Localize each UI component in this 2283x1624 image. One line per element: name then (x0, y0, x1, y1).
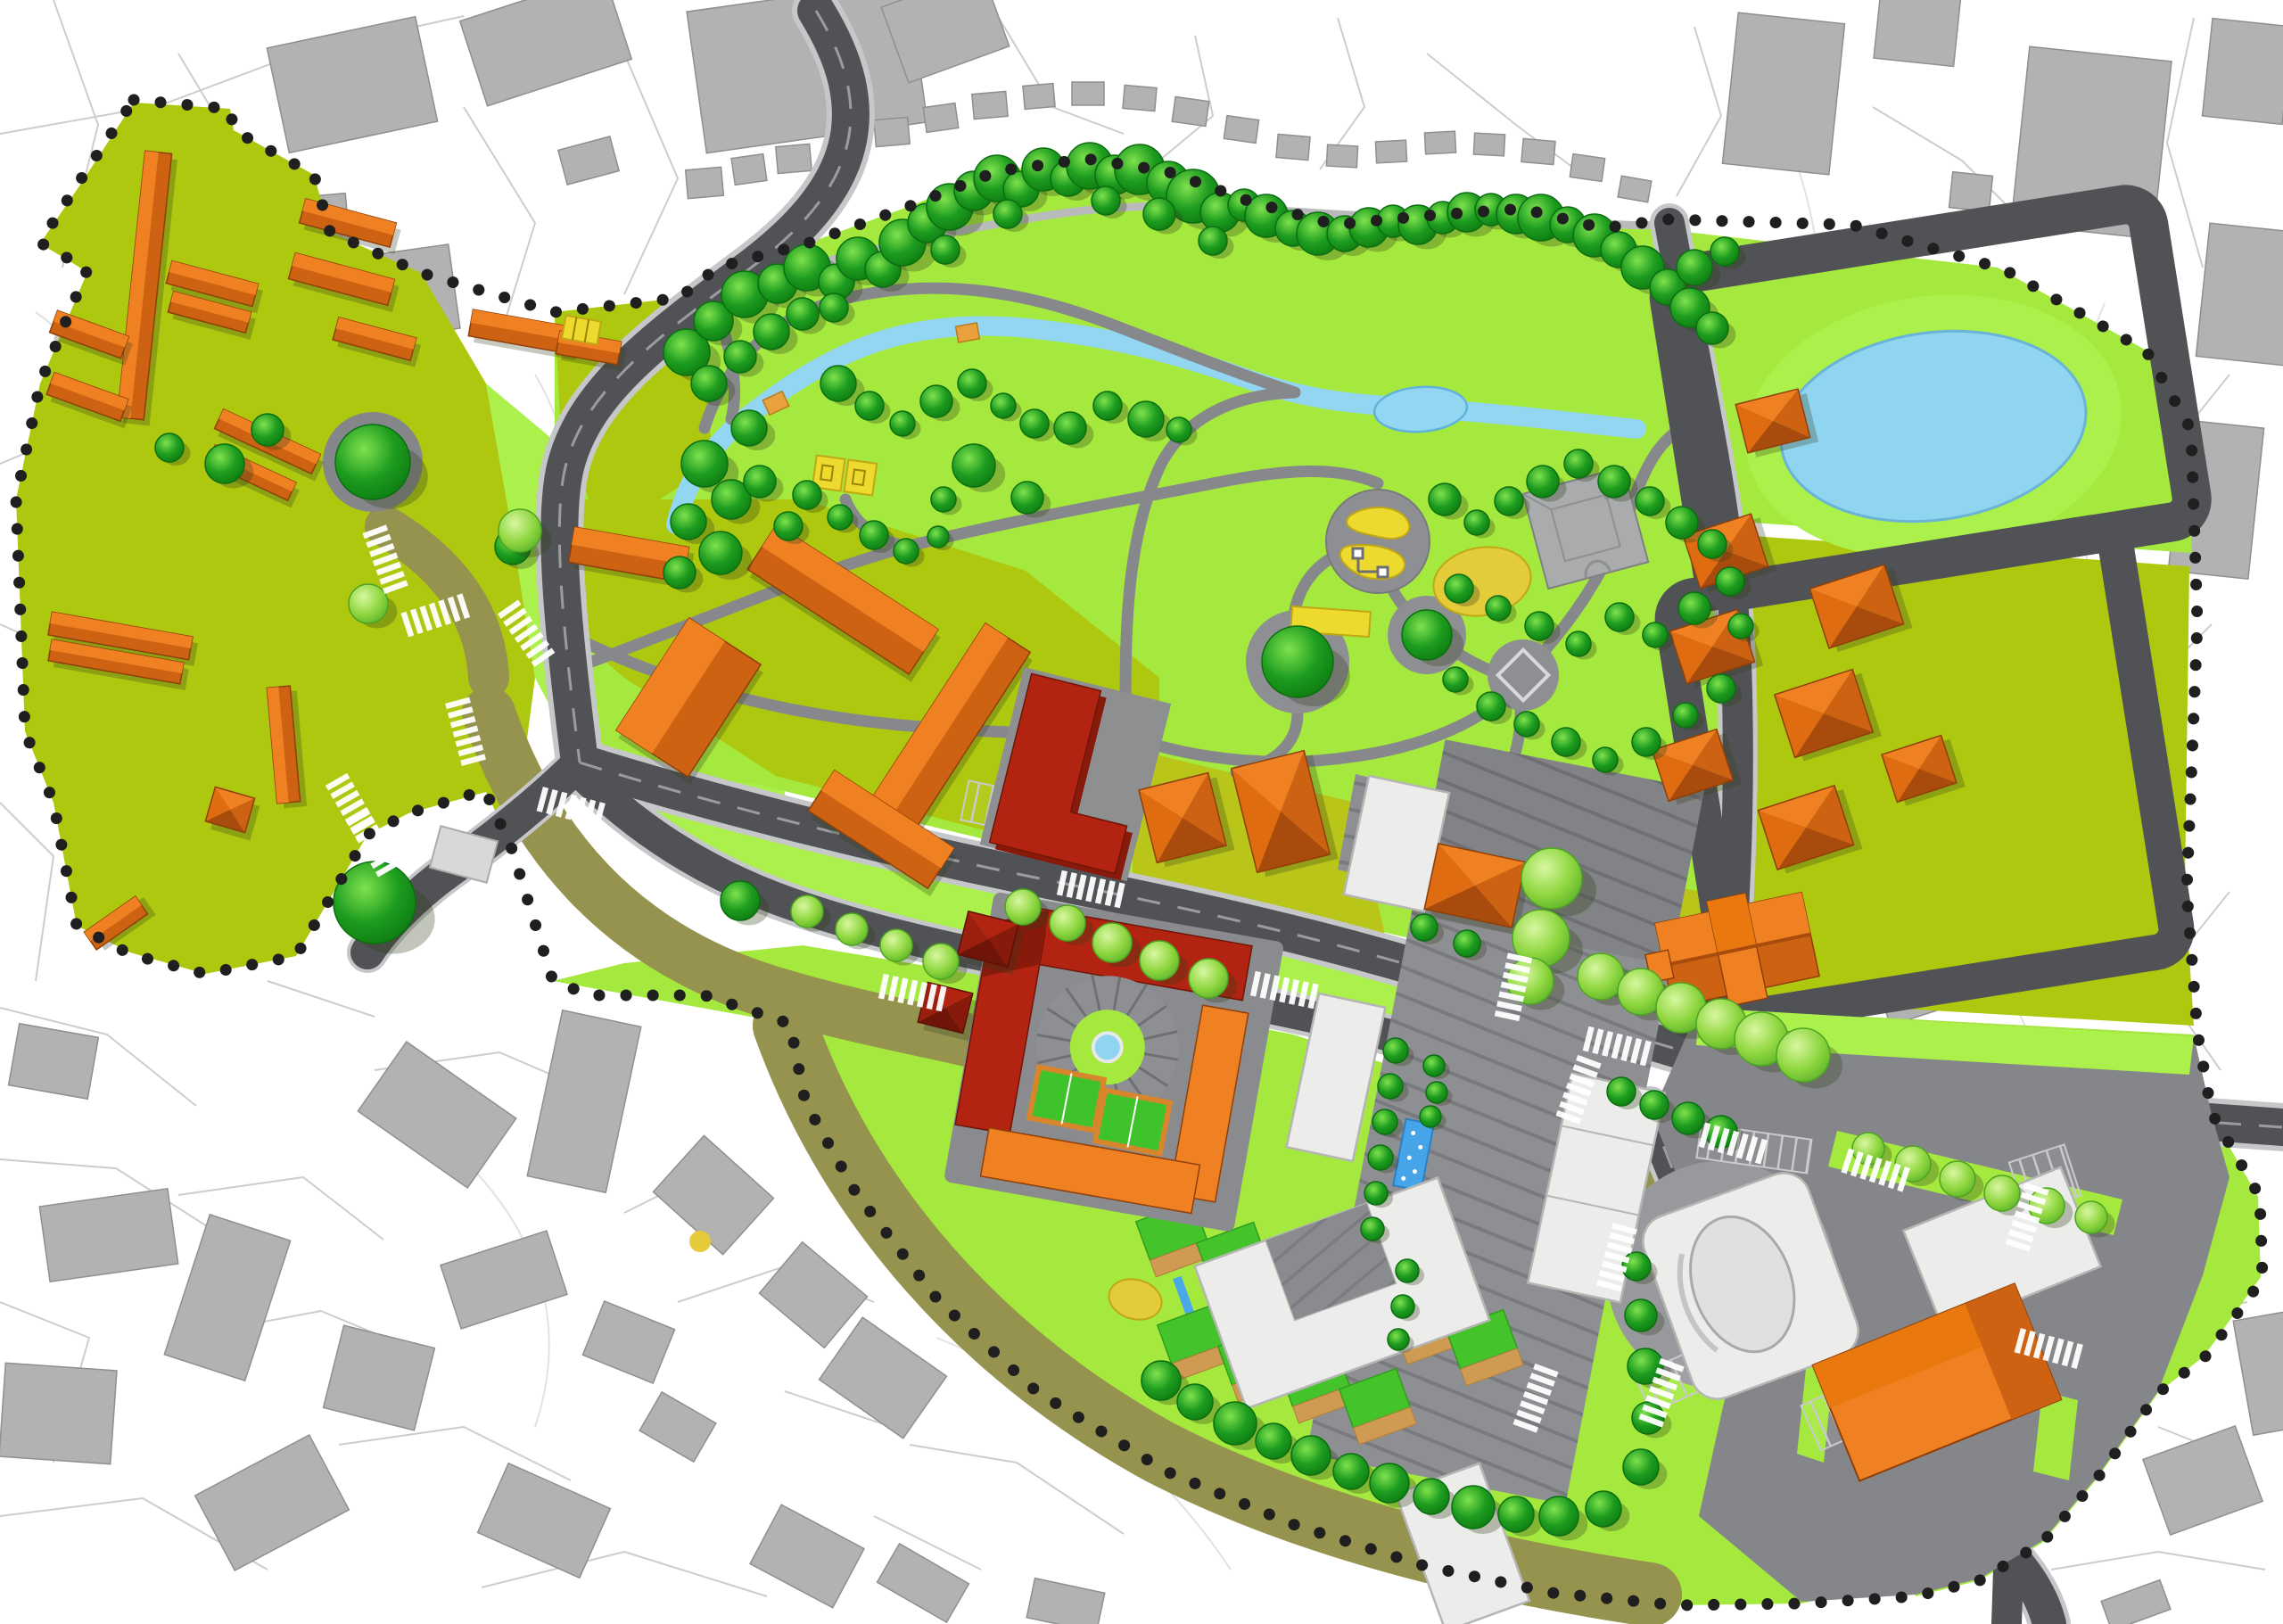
context-building (267, 17, 437, 153)
context-building (1874, 0, 1961, 66)
context-building (9, 1024, 99, 1100)
context-building (1026, 1579, 1105, 1624)
context-building (195, 1435, 350, 1570)
context-building (1949, 172, 1993, 211)
context-building (1023, 84, 1055, 110)
context-building (441, 1231, 567, 1329)
context-building (582, 1301, 674, 1383)
context-building (0, 1363, 117, 1463)
context-building (654, 1135, 774, 1254)
masterplan-svg (0, 0, 2283, 1624)
context-building (2143, 1426, 2262, 1535)
context-building (358, 1042, 515, 1188)
context-building (820, 1317, 947, 1439)
context-building (1618, 176, 1652, 202)
context-building (1172, 96, 1209, 126)
context-building (776, 144, 812, 173)
context-building (39, 1189, 177, 1282)
context-building (1375, 140, 1406, 163)
context-building (731, 154, 767, 185)
context-building (1473, 133, 1504, 156)
context-building (324, 1325, 435, 1430)
sports-court (1029, 1067, 1104, 1130)
context-building (639, 1392, 716, 1462)
context-building (2196, 223, 2283, 366)
context-building (1224, 116, 1258, 144)
context-building (972, 91, 1008, 119)
context-building (1072, 82, 1104, 105)
context-building (2202, 19, 2283, 125)
context-building (1570, 154, 1604, 182)
yellow-pavilion-small (562, 316, 601, 345)
sports-court (1095, 1090, 1170, 1153)
context-building (460, 0, 632, 106)
context-building (750, 1504, 864, 1608)
context-building (2233, 1312, 2283, 1435)
context-building (923, 103, 959, 133)
context-building (1521, 138, 1555, 164)
context-building (878, 1544, 969, 1622)
context-building (164, 1215, 290, 1381)
context-building (1123, 85, 1157, 111)
context-building (760, 1242, 868, 1348)
context-building (1722, 12, 1844, 175)
masterplan-canvas (0, 0, 2283, 1624)
context-building (527, 1010, 641, 1193)
stream-bridge (956, 323, 980, 342)
context-building (874, 117, 910, 146)
context-building (686, 167, 724, 198)
context-building (1424, 131, 1455, 154)
context-building (1326, 144, 1357, 168)
context-building (1276, 134, 1310, 160)
context-building (2101, 1580, 2171, 1624)
sand-area (689, 1231, 711, 1252)
context-building (558, 136, 619, 185)
